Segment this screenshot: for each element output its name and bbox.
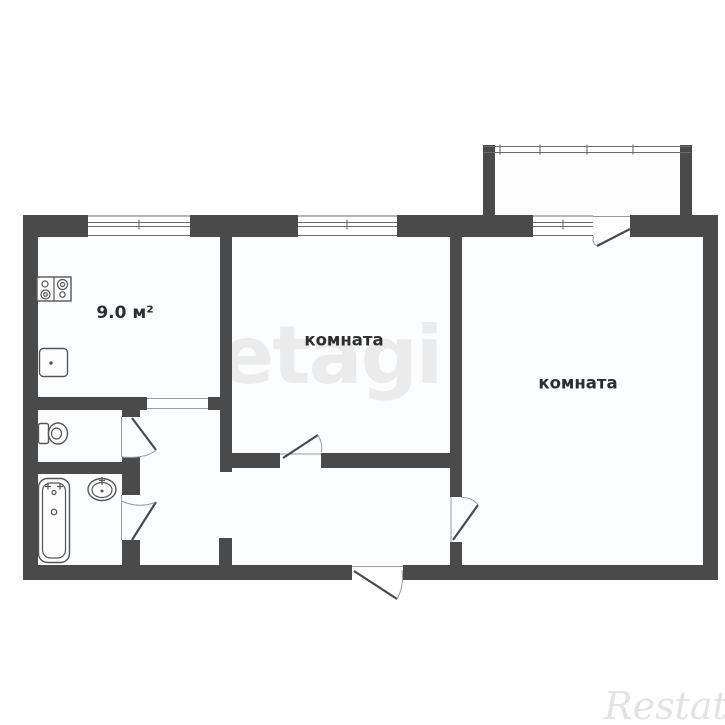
- wall-hall-top: [222, 453, 280, 468]
- wall-hall-top: [321, 453, 450, 468]
- wall-stub: [219, 538, 232, 565]
- right-room-label: комната: [538, 374, 617, 393]
- watermark-restate: Restate: [604, 687, 725, 725]
- entrance-door: [352, 567, 403, 600]
- wall-kitchen-divider: [220, 237, 232, 472]
- floor-plan-canvas: etagi: [0, 0, 725, 725]
- middle-room-label: комната: [304, 331, 383, 350]
- watermark-etagi: etagi: [220, 316, 441, 396]
- middle-room-window: [298, 216, 397, 236]
- wall-segment-bottom: [23, 565, 352, 580]
- wall-segment-right-outer: [703, 237, 718, 580]
- wall-room-divider: [450, 237, 462, 497]
- wall-stub: [450, 542, 462, 565]
- wall-stub: [208, 397, 220, 410]
- balcony-wall-left: [483, 145, 495, 215]
- wall-segment-left-outer: [23, 215, 38, 580]
- wall-segment-bottom: [403, 565, 718, 580]
- wall-stub: [122, 540, 140, 565]
- wall-wc-bath-divider: [38, 462, 128, 474]
- wall-segment: [397, 215, 533, 237]
- balcony-window: [533, 216, 593, 236]
- kitchen-window: [88, 216, 190, 236]
- wall-segment: [630, 215, 718, 237]
- balcony-wall-right: [680, 145, 692, 215]
- wall-stub: [122, 410, 140, 417]
- kitchen-area-label: 9.0 м²: [96, 303, 153, 323]
- balcony-floor: [495, 153, 680, 215]
- wall-kitchen-bottom: [38, 397, 147, 410]
- wall-segment: [190, 215, 298, 237]
